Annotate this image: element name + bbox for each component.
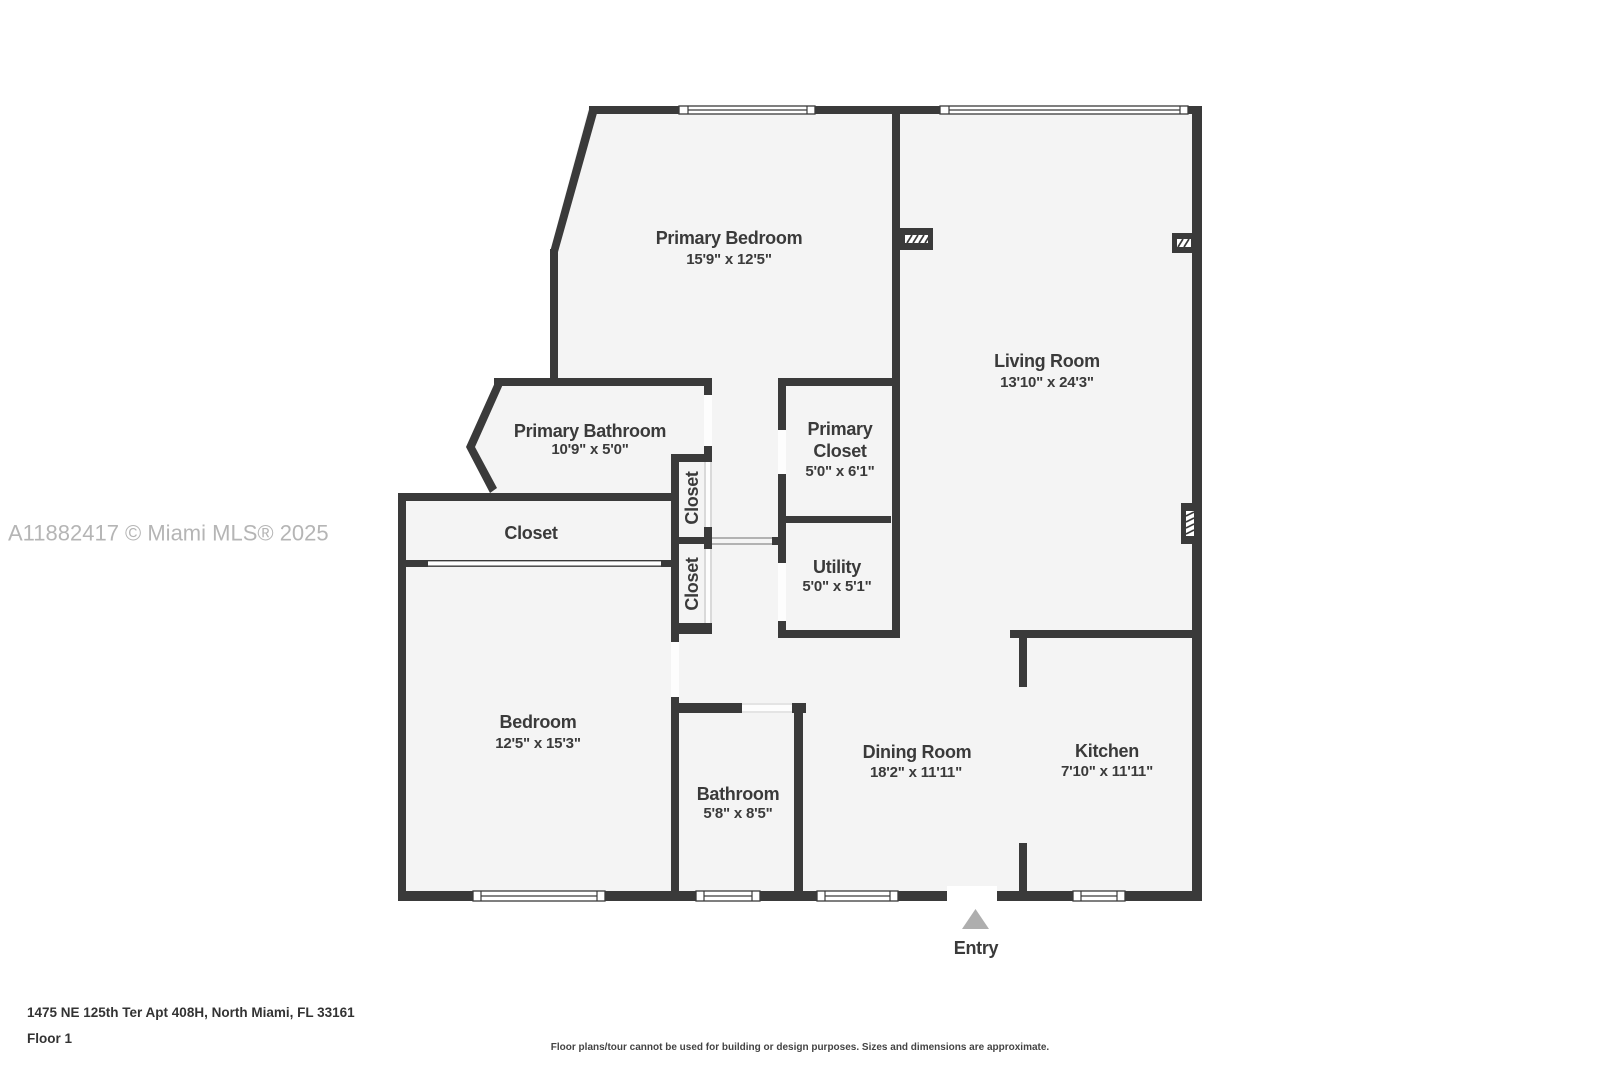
svg-text:Closet: Closet	[504, 523, 558, 543]
svg-text:13'10" x 24'3": 13'10" x 24'3"	[1000, 374, 1094, 391]
svg-text:18'2" x 11'11": 18'2" x 11'11"	[870, 764, 962, 781]
svg-text:Closet: Closet	[682, 471, 702, 525]
svg-text:Floor plans/tour cannot be use: Floor plans/tour cannot be used for buil…	[551, 1042, 1050, 1053]
svg-text:Entry: Entry	[954, 938, 999, 958]
svg-text:15'9" x 12'5": 15'9" x 12'5"	[686, 251, 772, 268]
svg-text:Primary: Primary	[808, 419, 873, 439]
svg-text:5'0" x 5'1": 5'0" x 5'1"	[802, 578, 871, 595]
svg-text:Dining Room: Dining Room	[863, 742, 972, 762]
svg-text:Kitchen: Kitchen	[1075, 741, 1139, 761]
svg-text:A11882417 © Miami MLS® 2025: A11882417 © Miami MLS® 2025	[8, 521, 329, 546]
svg-text:Utility: Utility	[813, 557, 861, 577]
svg-text:Closet: Closet	[813, 441, 867, 461]
svg-text:Primary Bedroom: Primary Bedroom	[656, 228, 803, 248]
svg-text:Closet: Closet	[682, 557, 702, 611]
svg-text:12'5" x 15'3": 12'5" x 15'3"	[495, 735, 581, 752]
svg-text:5'8" x 8'5": 5'8" x 8'5"	[703, 805, 772, 822]
svg-text:Bathroom: Bathroom	[697, 784, 780, 804]
svg-text:5'0" x 6'1": 5'0" x 6'1"	[805, 463, 874, 480]
svg-text:Bedroom: Bedroom	[500, 712, 577, 732]
svg-text:Floor 1: Floor 1	[27, 1031, 72, 1046]
svg-text:7'10" x 11'11": 7'10" x 11'11"	[1061, 763, 1153, 780]
svg-text:10'9" x 5'0": 10'9" x 5'0"	[551, 441, 628, 458]
svg-text:1475 NE 125th Ter Apt 408H, No: 1475 NE 125th Ter Apt 408H, North Miami,…	[27, 1005, 355, 1020]
svg-text:Living Room: Living Room	[994, 351, 1100, 371]
svg-text:Primary Bathroom: Primary Bathroom	[514, 421, 666, 441]
